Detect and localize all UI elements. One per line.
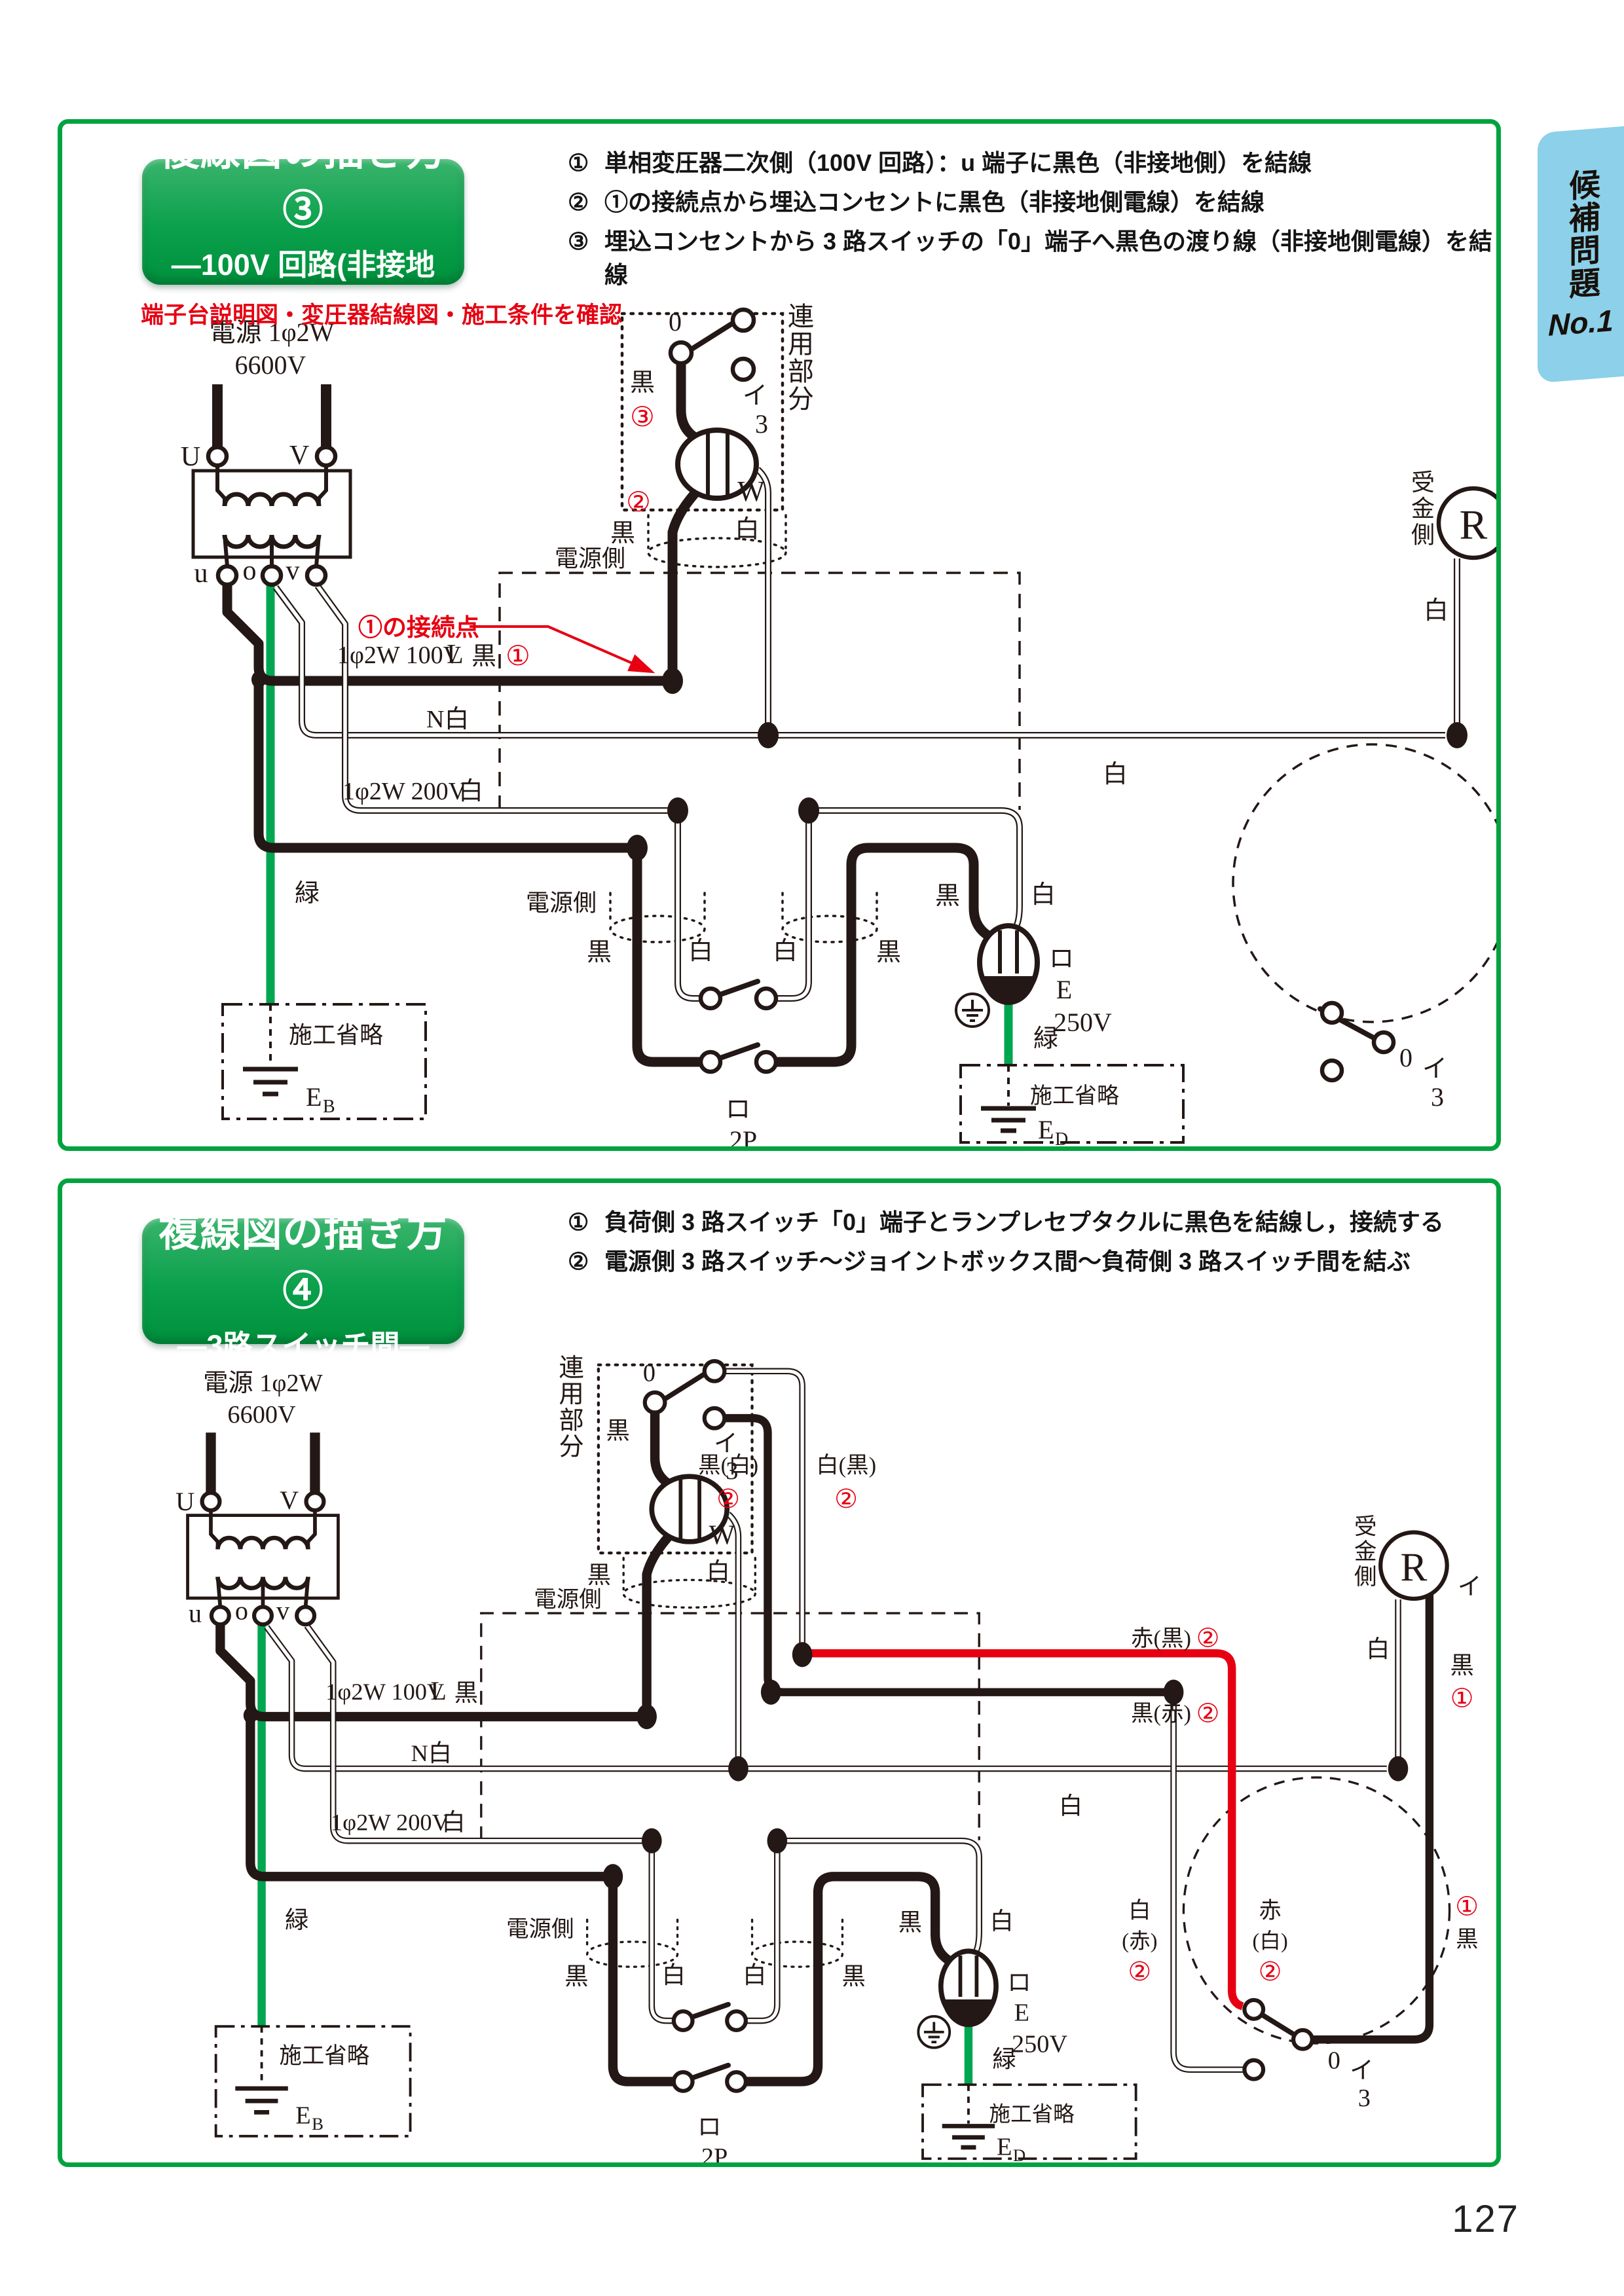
svg-text:o: o (235, 1596, 248, 1626)
label-outlet-250v: 250V (1054, 1008, 1112, 1037)
svg-text:W: W (709, 1520, 735, 1551)
label-black: 黒 (876, 939, 901, 966)
step-mark-3: ③ (630, 403, 655, 433)
label-terminal-u: u (194, 558, 208, 589)
white-2p-switch-wire (776, 819, 809, 998)
label-load-switch-3: 3 (1431, 1082, 1444, 1112)
terminal-o (263, 566, 281, 585)
switch-terminal-0 (671, 342, 692, 363)
svg-text:白: 白 (1366, 1636, 1390, 1662)
panel-100v-circuit: 電源 1φ2W 6600V U V u o v 連用部分 0 イ 3 黒 ③ ②… (58, 119, 1501, 1151)
label-black: 黒 (630, 369, 655, 397)
step-item: ①負荷側 3 路スイッチ「0」端子とランプレセプタクルに黒色を結線し，接続する (568, 1205, 1504, 1239)
svg-text:L: L (430, 1676, 447, 1705)
svg-text:イ: イ (1350, 2058, 1373, 2084)
svg-text:ロ: ロ (1007, 1970, 1031, 1996)
label-black-run: 黒(赤) (1131, 1702, 1191, 1726)
label-green: 緑 (1033, 1025, 1058, 1053)
svg-text:②: ② (834, 1484, 858, 1514)
instruction-steps: ①単相変圧器二次側（100V 回路）：u 端子に黒色（非接地側）を結線 ②①の接… (568, 146, 1504, 297)
svg-text:黒: 黒 (454, 1680, 478, 1706)
svg-text:②: ② (1196, 1699, 1220, 1728)
black-outlet-feed (673, 488, 700, 674)
2p-switch-terminal (756, 1052, 776, 1072)
book-page: 候補問題 No.1 (0, 0, 1624, 2296)
svg-text:1φ2W 200V: 1φ2W 200V (331, 1809, 449, 1835)
label-white: 白 (735, 516, 760, 543)
svg-text:2P: 2P (701, 2143, 728, 2162)
label-L: L (447, 640, 464, 670)
load-switch-terminal (1374, 1032, 1393, 1052)
label-white: 白 (773, 938, 798, 965)
dashed-boundary (500, 573, 1020, 810)
primary-coil (225, 494, 319, 506)
label-load-switch-i: イ (1422, 1055, 1447, 1083)
instruction-steps: ①負荷側 3 路スイッチ「0」端子とランプレセプタクルに黒色を結線し，接続する … (568, 1205, 1504, 1284)
label-red-run: 赤(黒) (1131, 1626, 1191, 1651)
label-black-receptacle: 黒 (1450, 1652, 1473, 1679)
load-switch-terminal (1322, 1061, 1342, 1080)
svg-text:白: 白 (1128, 1898, 1151, 1923)
svg-text:②: ② (1196, 1624, 1220, 1653)
svg-text:(赤): (赤) (1122, 1929, 1157, 1953)
label-white: 白 (1031, 881, 1056, 909)
label-2p: 2P (729, 1125, 757, 1146)
svg-text:電源側: 電源側 (534, 1587, 601, 1612)
label-socket-side: 受金側 (1411, 469, 1435, 548)
svg-text:白: 白 (1059, 1793, 1082, 1819)
label-eb-E: E (306, 1082, 322, 1112)
svg-text:B: B (312, 2114, 323, 2134)
label-switch-0: 0 (669, 307, 682, 337)
svg-text:②: ② (716, 1484, 740, 1514)
svg-text:(白): (白) (1253, 1929, 1288, 1953)
svg-text:赤: 赤 (1259, 1898, 1281, 1923)
svg-text:6600V: 6600V (227, 1401, 296, 1429)
primary-lead (321, 384, 331, 447)
label-white: 白 (1424, 597, 1449, 625)
svg-text:緑: 緑 (992, 2046, 1016, 2072)
panel-title: 複線図の描き方④ (142, 1199, 464, 1317)
step-item: ②電源側 3 路スイッチ～ジョイントボックス間～負荷側 3 路スイッチ間を結ぶ (568, 1245, 1504, 1279)
label-gang-section: 連用部分 (559, 1355, 584, 1461)
label-switch-3: 3 (755, 409, 768, 439)
svg-text:施工省略: 施工省略 (279, 2044, 369, 2069)
label-omit-eb: 施工省略 (289, 1022, 383, 1048)
svg-text:D: D (1013, 2145, 1025, 2162)
svg-text:イ: イ (1458, 1573, 1481, 1599)
step-item: ③埋込コンセントから 3 路スイッチの「0」端子へ黒色の渡り線（非接地側電線）を… (568, 225, 1504, 293)
label-ro: ロ (726, 1096, 750, 1123)
svg-text:u: u (189, 1598, 202, 1628)
svg-text:電源側: 電源側 (506, 1917, 574, 1942)
svg-text:0: 0 (643, 1360, 655, 1387)
svg-text:E: E (1014, 1999, 1029, 2027)
label-bus-200v: 1φ2W 200V (342, 778, 467, 805)
svg-text:①: ① (1450, 1684, 1474, 1713)
label-black: 黒 (587, 939, 612, 966)
label-omit-ed: 施工省略 (1030, 1084, 1119, 1108)
joint-box-dashed-circle (1183, 1777, 1449, 2043)
step-mark-1: ① (506, 642, 530, 672)
svg-text:E: E (997, 2134, 1012, 2161)
step-mark-2: ② (626, 488, 651, 518)
2p-switch-terminal (701, 989, 720, 1008)
label-R: R (1460, 501, 1488, 548)
primary-lead (212, 384, 223, 447)
label-white: 白 (458, 778, 483, 805)
label-gang-section: 連用部分 (788, 302, 814, 414)
black-switch-jumper (681, 363, 701, 442)
2p-switch-terminal (701, 1052, 720, 1072)
label-bus-100v: 1φ2W 100V (337, 642, 462, 669)
load-switch-terminal (1322, 1003, 1342, 1023)
label-terminal-v: v (286, 556, 300, 586)
label-terminal-V: V (289, 441, 309, 471)
svg-text:v: v (276, 1596, 290, 1626)
svg-text:R: R (1401, 1545, 1428, 1590)
label-eb-B: B (323, 1097, 335, 1117)
label-source-side: 電源側 (555, 545, 625, 572)
terminal-u (218, 566, 236, 585)
svg-text:黒: 黒 (1456, 1927, 1478, 1952)
svg-text:0: 0 (1328, 2047, 1340, 2074)
switch-terminal (733, 310, 754, 331)
joint-dot (792, 1642, 813, 1667)
label-outlet-ro: ロ (1049, 945, 1074, 973)
svg-text:黒: 黒 (841, 1963, 865, 1990)
page-number: 127 (1452, 2197, 1519, 2241)
step-item: ②①の接続点から埋込コンセントに黒色（非接地側電線）を結線 (568, 185, 1504, 219)
svg-text:施工省略: 施工省略 (989, 2102, 1075, 2126)
panel-subtitle: ―3路スイッチ間― (142, 1322, 464, 1364)
switch-terminal (733, 359, 754, 380)
label-ed-D: D (1055, 1129, 1068, 1146)
terminal-U (208, 447, 227, 465)
svg-text:250V: 250V (1012, 2030, 1067, 2058)
svg-text:受金側: 受金側 (1354, 1514, 1376, 1590)
load-switch-terminal (1244, 2060, 1263, 2079)
panel-title: 複線図の描き方③ (142, 118, 464, 236)
svg-text:3: 3 (1358, 2085, 1371, 2112)
svg-text:緑: 緑 (285, 1907, 308, 1933)
svg-text:ロ: ロ (697, 2114, 721, 2140)
connection-point-note: ①の接続点 (358, 614, 479, 641)
step-item: ①単相変圧器二次側（100V 回路）：u 端子に黒色（非接地側）を結線 (568, 146, 1504, 180)
joint-dot (761, 1680, 781, 1705)
title-badge: 複線図の描き方③ ―100V 回路(非接地側)― (142, 159, 464, 285)
white-250v-outlet-wire (809, 811, 1020, 930)
svg-text:黒: 黒 (564, 1963, 588, 1990)
svg-text:白: 白 (441, 1809, 465, 1835)
svg-text:U: U (175, 1487, 194, 1516)
svg-text:白: 白 (743, 1962, 766, 1988)
connection-point-arrow (470, 627, 650, 671)
label-switch-i: イ (743, 382, 767, 410)
label-white: 白 (1103, 761, 1128, 788)
check-note: 端子台説明図・変圧器結線図・施工条件を確認 (141, 297, 622, 330)
svg-text:V: V (280, 1485, 299, 1515)
terminal-v (307, 566, 325, 585)
label-white: 白 (688, 938, 713, 965)
label-N-white: N白 (426, 706, 469, 733)
label-black: 黒 (935, 883, 960, 910)
label-ed-E: E (1038, 1115, 1054, 1144)
label-terminal-U: U (181, 442, 200, 472)
black-200v-wire (259, 678, 628, 848)
label-load-switch-0: 0 (1399, 1043, 1412, 1072)
label-black: 黒 (471, 643, 496, 670)
svg-text:1φ2W 100V: 1φ2W 100V (325, 1679, 444, 1705)
label-traveler-white: 白(黒) (816, 1453, 876, 1478)
load-switch-terminal (1244, 2000, 1263, 2019)
label-source-voltage: 6600V (235, 350, 306, 380)
label-terminal-o: o (243, 556, 257, 586)
terminal-V (317, 447, 335, 465)
svg-text:黒: 黒 (587, 1562, 611, 1588)
svg-text:黒: 黒 (606, 1418, 629, 1444)
white-2p-switch-wire (678, 819, 700, 998)
label-source-side: 電源側 (526, 890, 597, 916)
label-traveler-black: 黒(白) (698, 1453, 758, 1478)
svg-text:白: 白 (990, 1908, 1014, 1935)
label-green: 緑 (295, 880, 320, 907)
svg-text:白: 白 (707, 1558, 730, 1584)
label-outlet-E: E (1056, 975, 1072, 1004)
joint-box-dashed-circle (1233, 744, 1496, 1022)
side-tab-number: No.1 (1548, 302, 1614, 343)
label-W: W (737, 475, 765, 507)
load-switch-terminal-0 (1293, 2030, 1312, 2049)
svg-text:②: ② (1259, 1957, 1282, 1986)
svg-text:電源 1φ2W: 電源 1φ2W (203, 1370, 323, 1397)
side-tab-title: 候補問題 (1558, 167, 1604, 302)
panel-3way-switch: 電源 1φ2W 6600V U V u o v 連用部分 0 イ 3 黒 W 白… (58, 1178, 1501, 2167)
svg-text:N白: N白 (411, 1740, 452, 1766)
white-outlet-wire (758, 469, 768, 727)
svg-text:黒: 黒 (898, 1910, 922, 1936)
svg-text:E: E (295, 2102, 310, 2130)
svg-text:②: ② (1128, 1957, 1151, 1986)
side-tab-kouho-mondai: 候補問題 No.1 (1538, 126, 1624, 383)
2p-switch-terminal (756, 989, 776, 1008)
switch-blade (691, 323, 733, 350)
svg-text:白: 白 (662, 1962, 686, 1988)
svg-text:①: ① (1455, 1892, 1479, 1922)
label-black: 黒 (610, 520, 635, 547)
title-badge: 複線図の描き方④ ―3路スイッチ間― (142, 1218, 464, 1344)
junction-dot-connection-1 (662, 668, 683, 694)
